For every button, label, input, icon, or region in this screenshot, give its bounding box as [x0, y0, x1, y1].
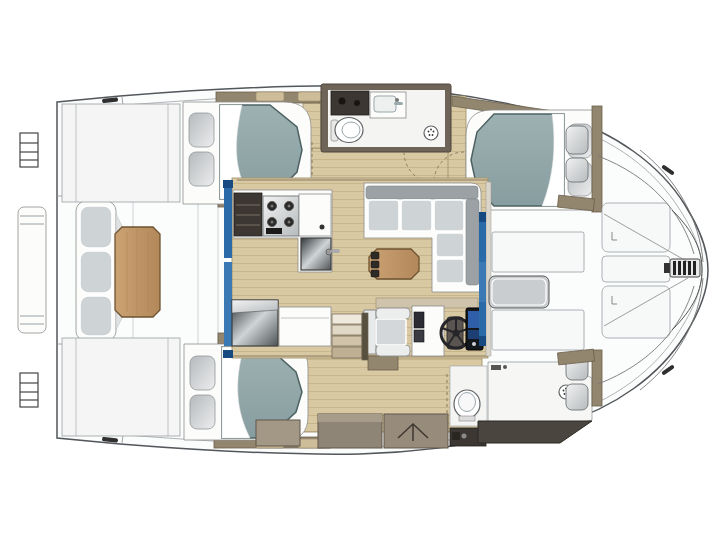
cockpit-bench-cushion — [80, 251, 112, 293]
table-hinge — [371, 252, 379, 259]
shower-counter — [331, 91, 369, 115]
sofa-cushion — [436, 233, 464, 257]
counter-white — [279, 307, 331, 346]
fwd-cockpit-panel — [492, 232, 584, 272]
table-hinge — [371, 261, 379, 268]
stbd-aft-lockers — [62, 338, 180, 436]
seat-cushion — [376, 319, 406, 345]
table-hinge — [371, 270, 379, 277]
vanity-hatch — [452, 432, 460, 440]
salon — [223, 178, 491, 370]
shower-head-icon — [424, 126, 438, 140]
shower-mixer — [491, 365, 501, 370]
forward-window-glass — [479, 212, 486, 346]
davit-platform — [18, 207, 46, 333]
sofa-cushion — [401, 200, 432, 231]
catamaran-floorplan — [0, 0, 720, 540]
foredeck-locker — [602, 203, 670, 252]
aft-galley-unit — [232, 300, 331, 346]
shower-step-dark — [478, 421, 592, 443]
deck-hatch — [566, 158, 588, 182]
faucet — [326, 249, 332, 255]
fwd-cockpit-cushion — [489, 276, 549, 308]
sink-basin — [374, 96, 396, 112]
faucet — [395, 98, 399, 102]
counter-white — [299, 194, 331, 236]
boarding-ladder-port — [20, 133, 38, 167]
sofa-backrest — [466, 199, 479, 285]
pillow — [189, 113, 214, 147]
toilet-hinge — [459, 416, 475, 421]
instrument — [414, 330, 424, 342]
cockpit-table — [115, 227, 160, 317]
pillow — [190, 395, 215, 429]
faucet-lever — [394, 102, 403, 105]
cleat-bow-starboard — [661, 364, 675, 375]
instrument — [414, 312, 424, 328]
counter-drain — [320, 225, 325, 230]
seat-armrest — [376, 345, 410, 356]
shower-control — [503, 365, 507, 369]
pillow — [190, 356, 215, 390]
boarding-ladder-starboard — [20, 373, 38, 407]
cabinet-top — [318, 414, 382, 422]
toilet-bowl — [459, 393, 476, 412]
fwd-cockpit-panel — [492, 310, 584, 350]
deck-slot — [256, 92, 284, 101]
cabinet — [256, 420, 300, 446]
companionway-stairs-starboard — [332, 313, 368, 360]
deck-hatch — [566, 384, 588, 410]
shower-control — [339, 98, 346, 105]
pillow — [189, 152, 214, 186]
cleat-bow-port — [661, 164, 675, 175]
faucet-lever — [331, 249, 340, 253]
sofa-cushion — [368, 200, 399, 231]
wardrobe — [384, 414, 448, 448]
forward-bulkhead — [486, 182, 491, 356]
sofa-cushion — [434, 200, 464, 231]
floorplan-canvas — [0, 0, 720, 540]
deck-slot — [298, 92, 324, 101]
sofa-backrest — [366, 186, 478, 199]
stove-burners — [263, 196, 299, 236]
cockpit-bench-cushion — [80, 296, 112, 336]
coffee-table — [369, 249, 419, 279]
sofa-cushion — [436, 259, 464, 283]
port-aft-lockers — [62, 104, 180, 202]
foredeck-locker — [602, 256, 670, 282]
seat-armrest — [376, 308, 410, 319]
stairwell-side — [368, 356, 398, 370]
toilet — [335, 118, 363, 143]
helm-seat — [362, 308, 410, 356]
galley-dark-counter — [234, 193, 262, 236]
cockpit-bench-cushion — [80, 206, 112, 248]
faucet — [462, 434, 467, 439]
shower-control — [354, 100, 360, 106]
deck-hatch — [566, 126, 588, 154]
headboard-bulkhead — [592, 106, 602, 212]
aft-platform — [18, 207, 46, 333]
foredeck-lockers — [602, 203, 670, 338]
